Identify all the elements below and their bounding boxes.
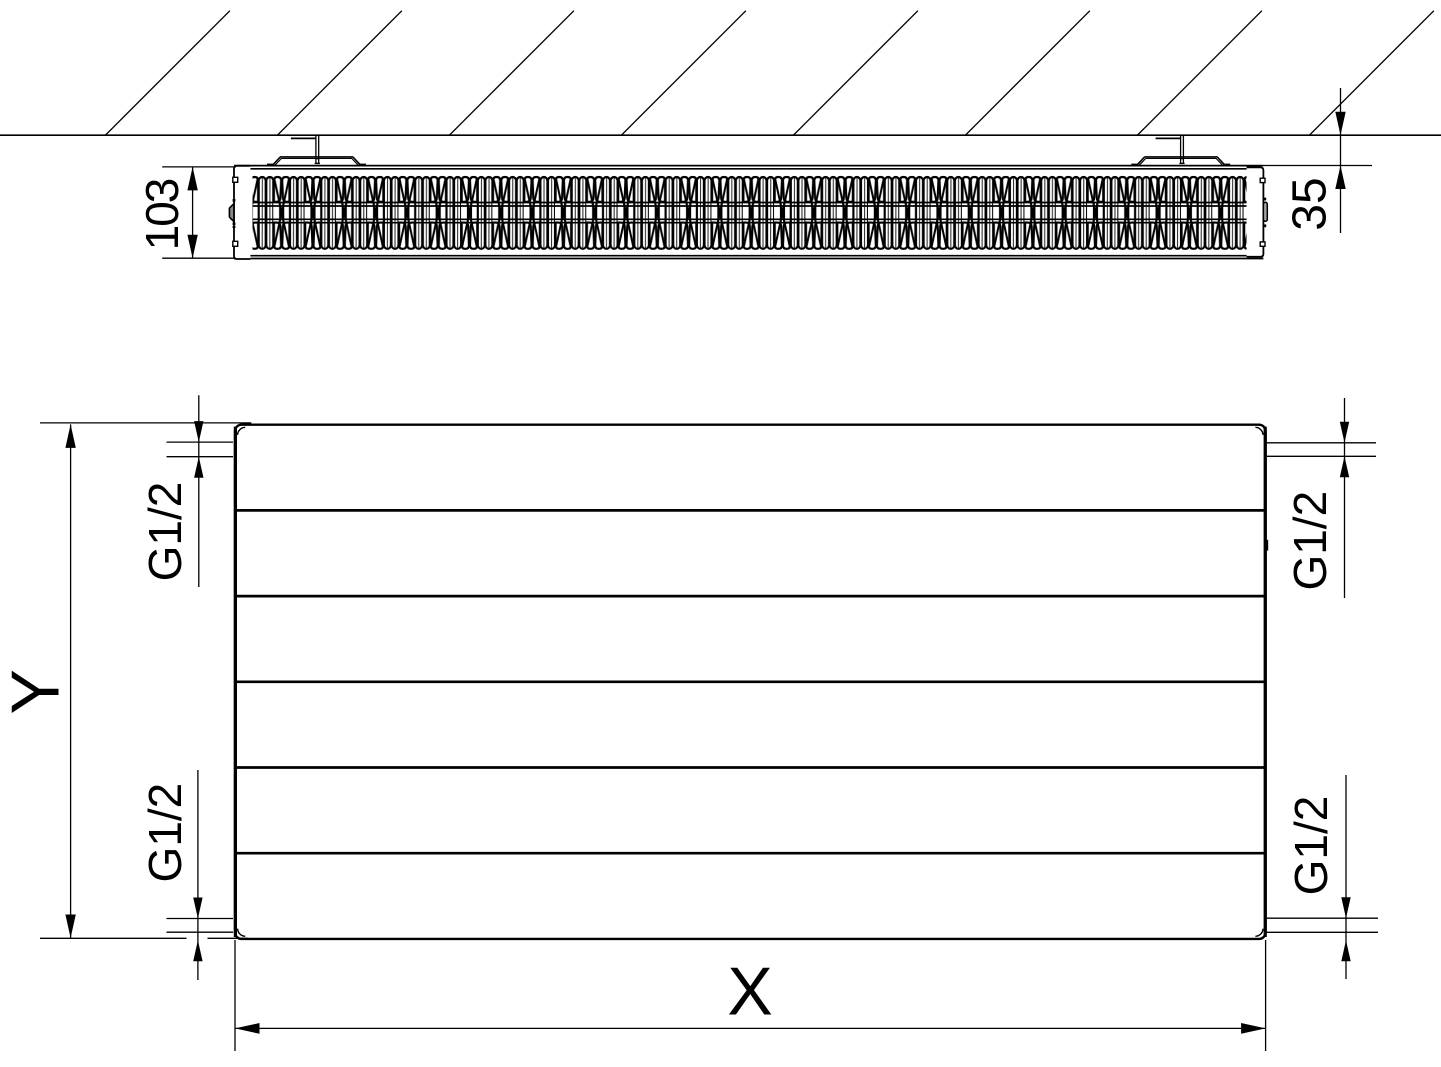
svg-text:G1/2: G1/2 [139, 783, 191, 883]
svg-text:35: 35 [1284, 177, 1337, 230]
svg-text:G1/2: G1/2 [1285, 796, 1337, 896]
svg-text:G1/2: G1/2 [1284, 491, 1336, 591]
svg-text:G1/2: G1/2 [139, 482, 191, 582]
svg-text:Y: Y [0, 669, 74, 714]
svg-text:103: 103 [136, 179, 188, 250]
svg-text:X: X [727, 954, 772, 1030]
